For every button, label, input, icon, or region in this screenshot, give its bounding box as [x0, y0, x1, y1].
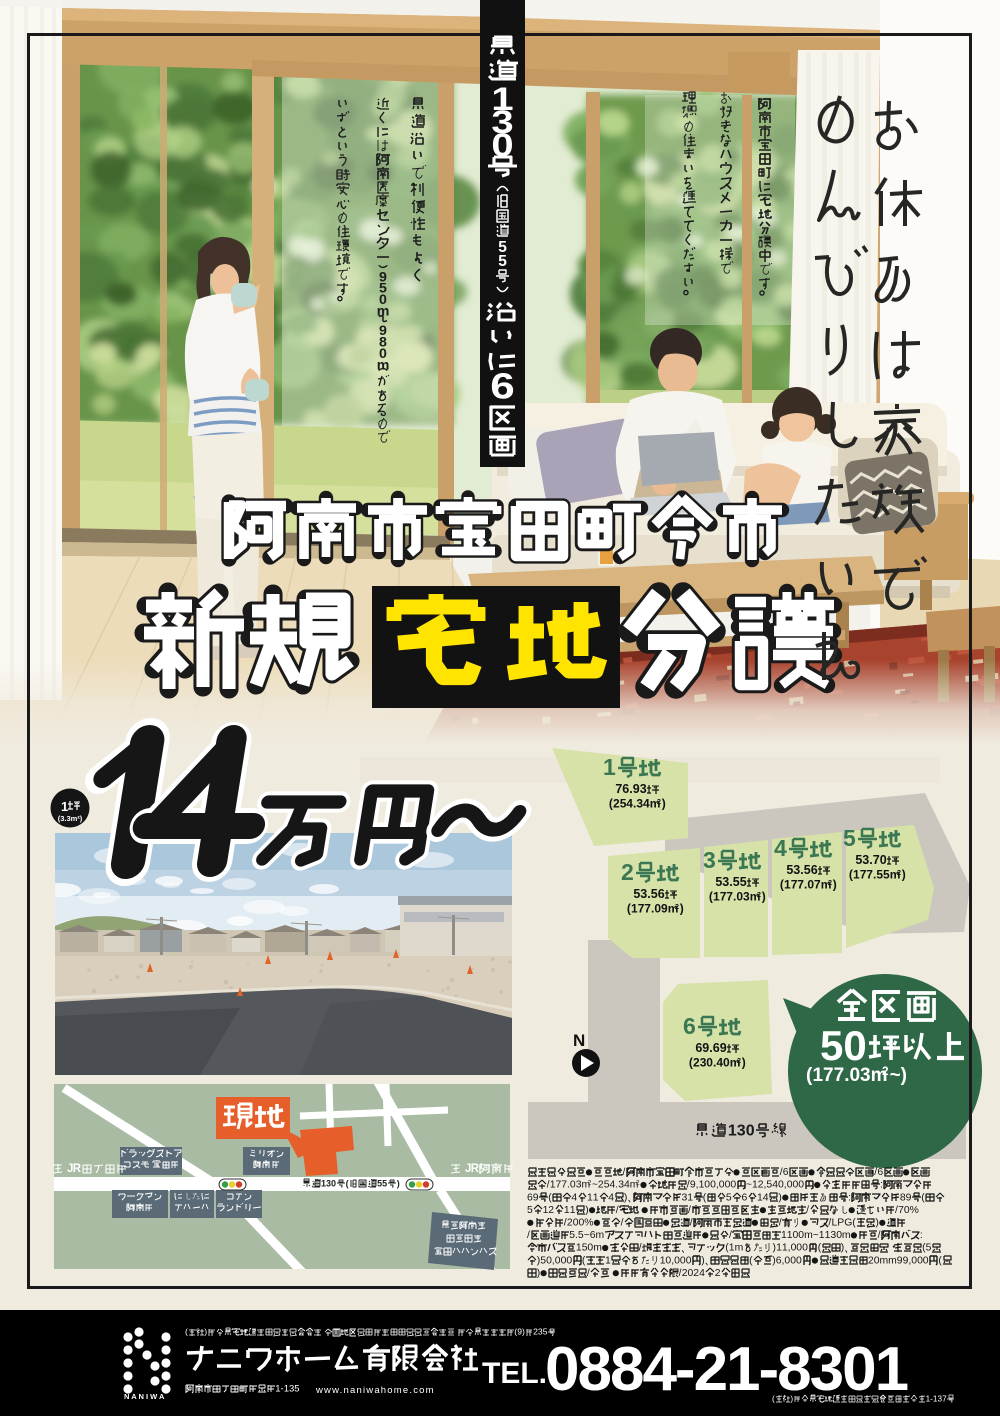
svg-text:1: 1 — [728, 1123, 737, 1140]
svg-text:): ) — [742, 1055, 746, 1069]
svg-text:2: 2 — [675, 902, 679, 911]
svg-text:www.naniwahome.com: www.naniwahome.com — [315, 1385, 435, 1396]
svg-text:3: 3 — [737, 1123, 746, 1140]
svg-text:3: 3 — [862, 853, 869, 867]
svg-text:6: 6 — [622, 782, 629, 796]
svg-text:0: 0 — [746, 1123, 755, 1140]
svg-text:5: 5 — [726, 1192, 732, 1203]
svg-text:/: / — [639, 1243, 642, 1254]
svg-text:9: 9 — [906, 1192, 912, 1203]
svg-text:TEL.: TEL. — [482, 1357, 547, 1390]
svg-text:m: m — [377, 357, 390, 373]
svg-text:(: ( — [185, 1327, 188, 1337]
svg-text:1: 1 — [687, 1192, 693, 1203]
svg-text:m: m — [880, 1255, 889, 1266]
svg-text:): ) — [762, 889, 766, 903]
svg-text::: : — [880, 1180, 883, 1191]
svg-text:): ) — [790, 1394, 793, 1403]
svg-text:/: / — [806, 1205, 809, 1216]
svg-text:): ) — [778, 1192, 781, 1203]
svg-text:6: 6 — [490, 366, 514, 406]
svg-text:N A N I W A: N A N I W A — [124, 1392, 165, 1401]
svg-text:): ) — [537, 1268, 540, 1279]
svg-text:4: 4 — [774, 835, 787, 861]
svg-text:%: % — [910, 1205, 919, 1216]
svg-text:): ) — [585, 1205, 588, 1216]
svg-text::: : — [848, 1192, 851, 1203]
svg-text:): ) — [397, 1178, 400, 1188]
svg-text:2: 2 — [621, 859, 634, 885]
svg-text:0: 0 — [566, 1255, 572, 1266]
svg-text:3: 3 — [640, 887, 647, 901]
svg-text:6: 6 — [658, 887, 665, 901]
svg-text:m: m — [735, 1243, 744, 1254]
svg-text:3: 3 — [860, 1065, 871, 1086]
svg-text:5: 5 — [294, 1383, 299, 1394]
svg-text:5: 5 — [843, 825, 856, 851]
svg-text:2: 2 — [657, 797, 661, 806]
svg-text:4: 4 — [763, 1192, 769, 1203]
svg-text:3: 3 — [722, 875, 729, 889]
svg-text::: : — [920, 1230, 923, 1241]
svg-text:0: 0 — [798, 1180, 804, 1191]
svg-text:(: ( — [749, 1255, 753, 1266]
svg-text:2: 2 — [737, 1056, 741, 1065]
svg-text:2: 2 — [715, 1268, 721, 1279]
svg-text:/: / — [729, 1230, 732, 1241]
svg-text:1: 1 — [605, 1255, 611, 1266]
svg-text:m: m — [593, 1243, 602, 1254]
svg-text:2: 2 — [636, 1180, 640, 1187]
svg-text:7: 7 — [823, 1065, 834, 1086]
svg-text:(3.3m²): (3.3m²) — [58, 814, 83, 823]
svg-text:m: m — [804, 1230, 813, 1241]
svg-text:9: 9 — [720, 1041, 727, 1055]
svg-text:(: ( — [772, 1394, 775, 1403]
svg-text:): ) — [680, 901, 684, 915]
svg-text:4: 4 — [608, 1192, 614, 1203]
svg-text:(: ( — [921, 1192, 925, 1203]
svg-text:5: 5 — [382, 1178, 387, 1188]
svg-text:0: 0 — [850, 1065, 861, 1086]
svg-text:2: 2 — [757, 890, 761, 899]
svg-text:(: ( — [703, 1192, 707, 1203]
svg-text:6: 6 — [683, 1013, 696, 1039]
svg-text:1: 1 — [813, 1065, 824, 1086]
svg-text:5: 5 — [527, 1205, 533, 1216]
svg-text:1: 1 — [570, 1205, 576, 1216]
svg-text:3: 3 — [793, 863, 800, 877]
svg-text:/: / — [621, 1218, 624, 1229]
svg-text:0: 0 — [880, 853, 887, 867]
svg-text:): ) — [624, 1192, 627, 1203]
svg-text:0: 0 — [730, 1180, 736, 1191]
svg-text:): ) — [902, 867, 906, 881]
svg-text:m: m — [596, 1230, 605, 1241]
svg-text:N: N — [573, 1031, 585, 1050]
svg-text:6: 6 — [783, 1167, 789, 1178]
svg-text:G: G — [844, 1218, 852, 1229]
svg-text:): ) — [901, 1065, 907, 1086]
svg-text:7: 7 — [942, 1394, 947, 1403]
svg-text:(: ( — [346, 1178, 349, 1188]
svg-text:1: 1 — [603, 754, 616, 780]
svg-text:R: R — [471, 1163, 480, 1175]
svg-text:): ) — [701, 1255, 704, 1266]
svg-text:3: 3 — [640, 782, 647, 796]
svg-text:/: / — [527, 1230, 530, 1241]
svg-text:m: m — [842, 1230, 851, 1241]
svg-text:R: R — [73, 1163, 82, 1175]
svg-text:(: ( — [818, 1243, 822, 1254]
svg-text:9: 9 — [533, 1192, 539, 1203]
svg-text:0: 0 — [802, 1243, 808, 1254]
svg-text:6: 6 — [877, 1167, 883, 1178]
svg-text:/: / — [690, 1218, 693, 1229]
svg-text:0: 0 — [796, 1255, 802, 1266]
svg-text:(: ( — [582, 1255, 586, 1266]
svg-text:6: 6 — [811, 863, 818, 877]
svg-text:0: 0 — [923, 1255, 929, 1266]
svg-text:1: 1 — [61, 799, 68, 814]
svg-text:): ) — [522, 1327, 525, 1337]
svg-text:/: / — [616, 1205, 619, 1216]
svg-text:4: 4 — [571, 1192, 577, 1203]
svg-text:/: / — [688, 1205, 691, 1216]
svg-text:1: 1 — [593, 1192, 599, 1203]
svg-text:5: 5 — [498, 253, 507, 270]
svg-text:2: 2 — [897, 868, 901, 877]
svg-text:/: / — [587, 1268, 590, 1279]
svg-text:2: 2 — [882, 1064, 889, 1078]
svg-text:(: ( — [938, 1255, 942, 1266]
svg-text:2: 2 — [548, 1205, 554, 1216]
svg-text:5: 5 — [740, 875, 747, 889]
svg-text:): ) — [833, 877, 837, 891]
svg-text:/: / — [878, 1230, 881, 1241]
svg-text:~: ~ — [890, 1065, 901, 1086]
svg-text:0: 0 — [331, 1178, 336, 1188]
svg-text:m: m — [888, 1255, 897, 1266]
svg-text:(: ( — [548, 1192, 552, 1203]
svg-text:%: % — [584, 1218, 593, 1229]
svg-text:50: 50 — [820, 1022, 867, 1069]
svg-text:3: 3 — [703, 847, 716, 873]
svg-text:4: 4 — [699, 1268, 705, 1279]
svg-text:): ) — [841, 1243, 844, 1254]
svg-text:7: 7 — [834, 1065, 845, 1086]
svg-text:2: 2 — [828, 878, 832, 887]
svg-text:0: 0 — [686, 1255, 692, 1266]
svg-text:(: ( — [852, 1218, 856, 1229]
svg-text:): ) — [662, 796, 666, 810]
svg-text:/: / — [779, 1218, 782, 1229]
svg-text:): ) — [204, 1327, 207, 1337]
svg-text:/: / — [623, 1167, 626, 1178]
svg-text:5: 5 — [926, 1243, 932, 1254]
svg-text:9: 9 — [702, 1041, 709, 1055]
svg-text:): ) — [875, 1218, 878, 1229]
svg-text:6: 6 — [742, 1192, 748, 1203]
svg-text:0884-21-8301: 0884-21-8301 — [545, 1335, 908, 1404]
